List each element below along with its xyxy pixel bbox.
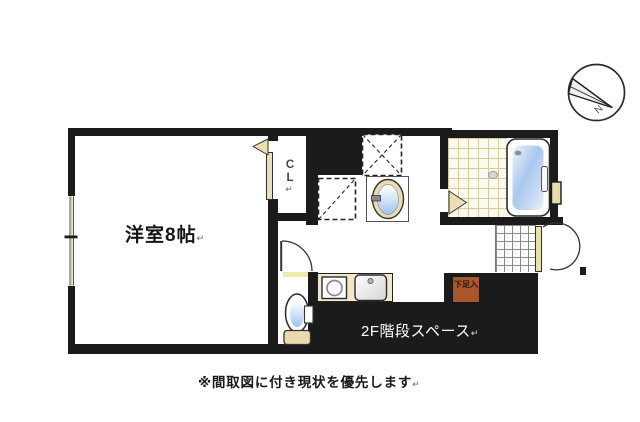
shoe-cabinet: 下足入 xyxy=(452,276,480,303)
bedroom-door-leaf xyxy=(266,152,273,200)
wall-entry-stub xyxy=(580,267,586,275)
toilet-door xyxy=(281,241,312,271)
kitchen-counter xyxy=(317,273,393,302)
wall-left-upper xyxy=(68,128,75,198)
wall-bathroom-right xyxy=(550,130,558,225)
compass-needle xyxy=(569,79,613,108)
return-mark: ↵ xyxy=(197,233,206,243)
return-mark: ↵ xyxy=(471,328,479,338)
bathroom-tiled-floor xyxy=(448,138,507,217)
wall-bathroom-bottom xyxy=(447,217,563,225)
wall-top-bathroom xyxy=(443,130,558,138)
wall-top-main xyxy=(68,128,452,136)
wall-block-mass xyxy=(318,128,362,175)
refrigerator-space xyxy=(319,179,356,220)
stairs-label: 2F階段スペース↵ xyxy=(361,320,479,341)
compass-n-label: N xyxy=(593,103,606,116)
wall-bottom xyxy=(68,344,322,354)
plan-symbols-layer: N xyxy=(0,0,640,422)
return-mark: ↵ xyxy=(412,379,420,389)
window-left xyxy=(65,196,78,286)
return-mark: ↵ xyxy=(285,185,295,196)
entrance-genkan-tiles xyxy=(495,225,536,272)
wall-bedroom-right-stub xyxy=(268,128,278,141)
washbasin-faucet xyxy=(372,196,381,202)
floor-plan-canvas: 下足入 xyxy=(0,0,640,422)
wall-closet-bottom xyxy=(272,213,318,221)
toilet-base xyxy=(284,331,311,345)
disclaimer-caption: ※間取図に付き現状を優先します↵ xyxy=(198,371,420,391)
washing-machine-space xyxy=(363,135,402,176)
wall-bathroom-left-upper xyxy=(440,130,448,189)
toilet-threshold xyxy=(283,272,308,277)
entrance-door-arc xyxy=(543,223,580,270)
bedroom-label: 洋室8帖↵ xyxy=(125,220,205,247)
washbasin xyxy=(367,177,409,222)
shoe-cabinet-label: 下足入 xyxy=(454,280,478,289)
wall-closet-right xyxy=(306,128,318,225)
window-mullion-tick xyxy=(65,236,78,239)
bathtub xyxy=(507,139,550,216)
bathtub-faucet xyxy=(515,151,522,156)
compass: N xyxy=(569,65,625,121)
bathtub-handle xyxy=(542,167,548,192)
closet-label: CL↵ xyxy=(284,159,296,196)
entrance-door-leaf xyxy=(535,226,542,272)
